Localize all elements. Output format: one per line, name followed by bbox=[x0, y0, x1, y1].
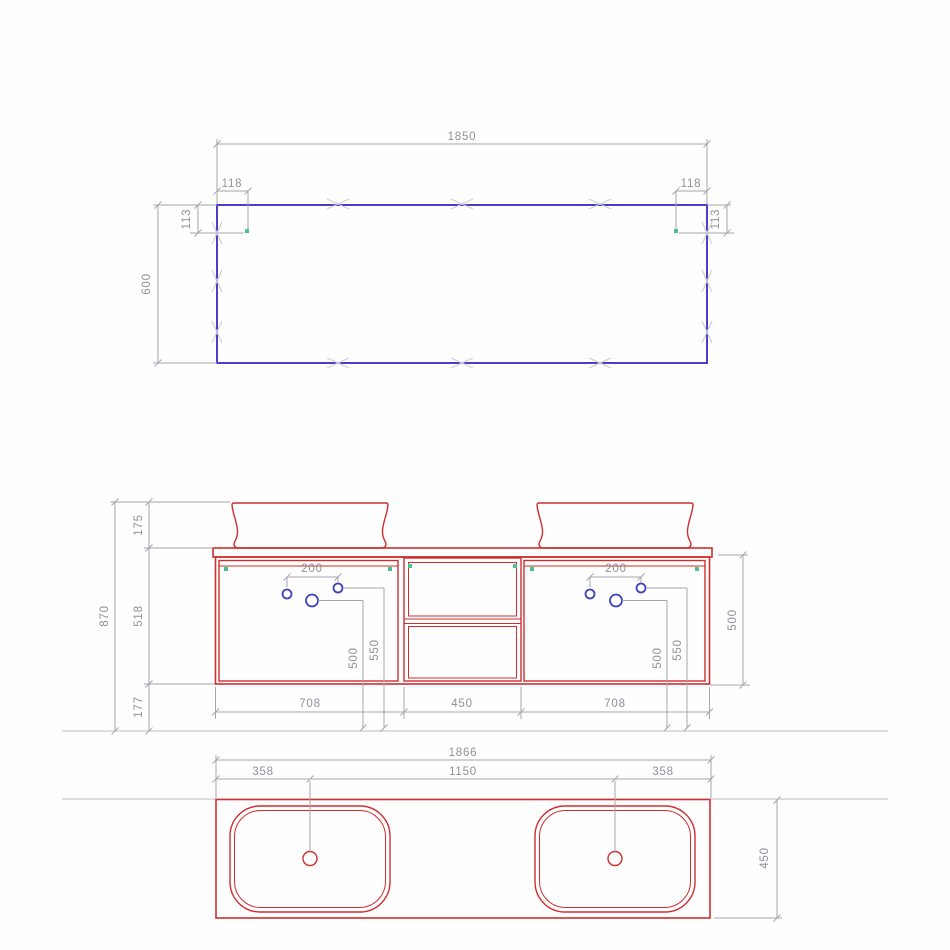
front-view: 870 175 518 177 200 200 500 550 500 550 … bbox=[62, 502, 888, 731]
vanity-technical-drawing: 1850 118 118 113 113 600 bbox=[0, 0, 950, 950]
fixing-point bbox=[388, 567, 392, 571]
worktop-outline bbox=[216, 800, 710, 919]
tap-hole bbox=[306, 595, 318, 607]
dim-label-top-depth: 600 bbox=[141, 273, 153, 295]
dim-label-top-inset-left: 118 bbox=[222, 178, 243, 190]
tap-hole bbox=[610, 595, 622, 607]
vessel-basin-left bbox=[232, 503, 388, 548]
countertop-front bbox=[213, 548, 712, 557]
fixing-point bbox=[245, 229, 249, 233]
dim-label-drain-offset-left: 358 bbox=[252, 766, 274, 778]
fixing-point bbox=[674, 229, 678, 233]
dim-label-floor-clearance: 177 bbox=[133, 696, 145, 718]
fixing-point bbox=[530, 567, 534, 571]
tap-hole bbox=[283, 590, 292, 599]
dim-label-drain-spacing: 1150 bbox=[449, 766, 477, 778]
dim-label-door-width-right: 708 bbox=[604, 698, 626, 710]
dim-label-top-inset-right: 118 bbox=[681, 178, 702, 190]
dim-label-total-height: 870 bbox=[99, 605, 111, 627]
generated-annotations bbox=[112, 141, 781, 922]
vessel-basin-right bbox=[537, 503, 693, 548]
dim-label-tap-height-outer-right: 550 bbox=[672, 639, 684, 661]
drain-right bbox=[608, 852, 622, 866]
cabinet-carcass bbox=[216, 557, 710, 684]
dim-label-plan-width: 1866 bbox=[449, 747, 478, 759]
drawing-canvas: 1850 118 118 113 113 600 bbox=[0, 0, 950, 950]
top-view: 1850 118 118 113 113 600 bbox=[141, 131, 734, 363]
fixing-point bbox=[513, 564, 517, 568]
dim-label-top-drop-left: 113 bbox=[181, 209, 193, 230]
dim-label-tap-spacing-right: 200 bbox=[605, 563, 627, 575]
dim-label-tap-height-inner-right: 500 bbox=[652, 647, 664, 669]
dim-label-door-width-left: 708 bbox=[299, 698, 321, 710]
fixing-point bbox=[408, 564, 412, 568]
dim-label-tap-spacing-left: 200 bbox=[301, 563, 323, 575]
door-left bbox=[219, 561, 398, 682]
dim-label-basin-height: 175 bbox=[133, 514, 145, 536]
shelf-bottom-opening bbox=[409, 627, 517, 679]
dim-label-shelf-width: 450 bbox=[451, 698, 473, 710]
dim-label-drain-offset-right: 358 bbox=[652, 766, 674, 778]
dim-label-tap-height-outer-left: 550 bbox=[369, 639, 381, 661]
tap-hole bbox=[637, 584, 646, 593]
shelf-top-opening bbox=[409, 563, 517, 617]
top-panel-outline bbox=[217, 205, 707, 363]
fixing-point bbox=[695, 567, 699, 571]
drain-left bbox=[303, 852, 317, 866]
dim-label-tap-height-inner-left: 500 bbox=[348, 647, 360, 669]
tap-hole bbox=[334, 584, 343, 593]
door-right bbox=[524, 561, 705, 682]
tap-hole bbox=[586, 590, 595, 599]
dim-label-top-drop-right: 113 bbox=[710, 209, 722, 230]
dim-label-plan-depth: 450 bbox=[759, 847, 771, 869]
fixing-point bbox=[224, 567, 228, 571]
dim-label-carcass-height: 500 bbox=[727, 609, 739, 631]
plan-view: 1866 358 1150 358 450 bbox=[62, 747, 888, 918]
dim-label-top-width: 1850 bbox=[448, 131, 477, 143]
dim-label-cabinet-height: 518 bbox=[133, 605, 145, 627]
